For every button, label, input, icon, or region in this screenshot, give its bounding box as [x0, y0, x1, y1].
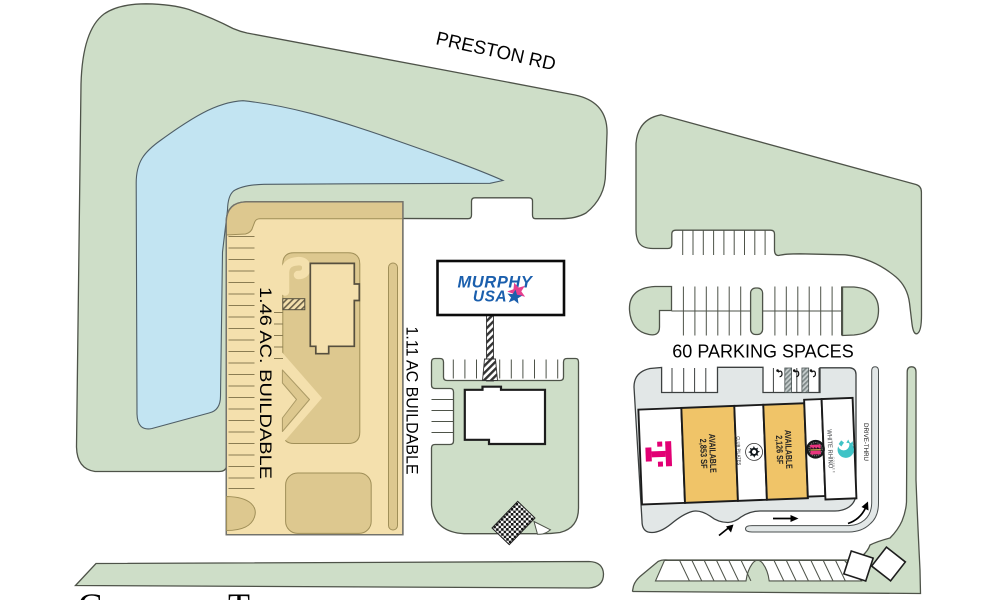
svg-text:1.11 AC BUILDABLE: 1.11 AC BUILDABLE [403, 327, 422, 475]
svg-text:DRIVE-THRU: DRIVE-THRU [862, 423, 869, 461]
svg-text:60 PARKING SPACES: 60 PARKING SPACES [672, 342, 853, 362]
svg-text:GanzerTerrace: GanzerTerrace [78, 586, 335, 600]
svg-text:2,126 SF: 2,126 SF [774, 435, 785, 465]
svg-text:COFFEE: COFFEE [831, 457, 836, 474]
svg-text:USA: USA [473, 289, 507, 306]
svg-text:PRESTON RD: PRESTON RD [434, 28, 558, 75]
svg-text:CLUB PILATES: CLUB PILATES [734, 436, 741, 465]
svg-text:1.46 AC. BUILDABLE: 1.46 AC. BUILDABLE [256, 287, 274, 479]
svg-text:2,853 SF: 2,853 SF [698, 438, 709, 469]
